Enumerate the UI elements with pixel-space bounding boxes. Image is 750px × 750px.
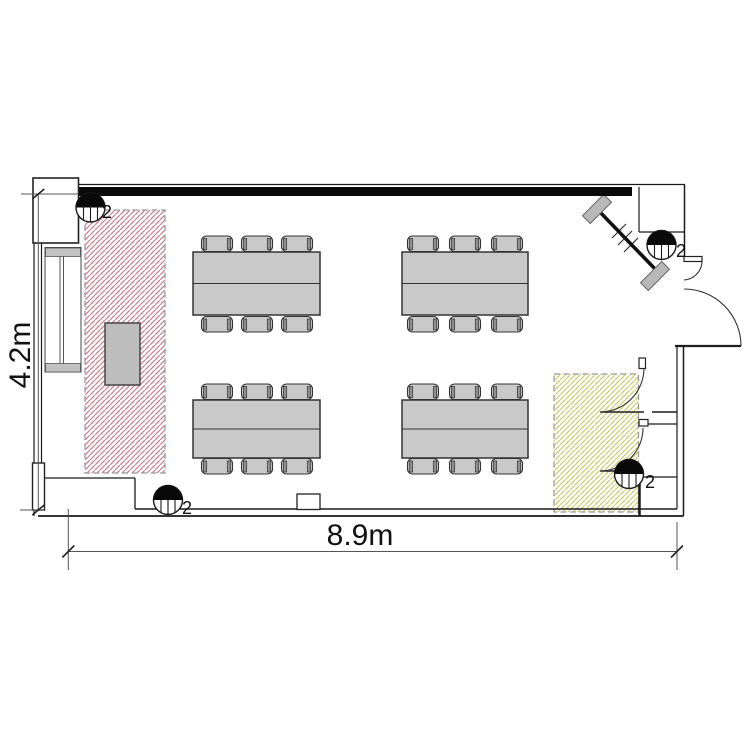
door-swing-arc	[684, 289, 741, 346]
chair	[202, 317, 233, 333]
ceiling-light-icon	[154, 486, 183, 515]
ceiling-light-icon	[76, 193, 105, 222]
top-wall-band	[79, 187, 632, 196]
chair	[492, 317, 523, 333]
door-leaf-small	[684, 257, 702, 262]
door-jamb	[639, 420, 648, 427]
door-swing-arc	[684, 262, 702, 281]
light-count-label: 2	[676, 241, 686, 261]
chair	[450, 236, 481, 252]
table-group	[402, 236, 528, 332]
chair	[242, 317, 273, 333]
chair	[202, 236, 233, 252]
chair	[282, 384, 313, 400]
chair	[202, 459, 233, 475]
chair	[408, 459, 439, 475]
chair	[242, 459, 273, 475]
chair	[492, 236, 523, 252]
chair	[242, 384, 273, 400]
pilaster	[297, 494, 320, 510]
chair	[408, 317, 439, 333]
chair	[492, 384, 523, 400]
light-count-label: 2	[645, 472, 655, 492]
table-group	[193, 236, 320, 332]
chair	[282, 317, 313, 333]
door-jamb	[639, 358, 646, 369]
ceiling-light-icon	[647, 231, 676, 260]
light-count-label: 2	[182, 498, 192, 518]
entrance-zone-hatch	[554, 374, 639, 512]
table-group	[193, 384, 320, 474]
column-top-left	[33, 178, 79, 243]
ceiling-light-icon	[615, 460, 644, 489]
table-group	[402, 384, 528, 474]
chair	[450, 459, 481, 475]
radiator	[45, 248, 81, 373]
chair	[492, 459, 523, 475]
width-dimension-label: 8.9m	[327, 519, 394, 552]
chair	[408, 236, 439, 252]
chair	[408, 384, 439, 400]
chair	[450, 384, 481, 400]
floor-plan-canvas: 2 2 2 2 4.2m 8.9m	[0, 0, 750, 750]
chair	[282, 236, 313, 252]
chair	[282, 459, 313, 475]
lectern	[105, 323, 140, 385]
chair	[202, 384, 233, 400]
entrance-door	[684, 257, 741, 347]
floor-plan-page: 2 2 2 2 4.2m 8.9m	[0, 0, 750, 750]
light-count-label: 2	[102, 202, 112, 222]
height-dimension-label: 4.2m	[4, 322, 37, 389]
chair	[242, 236, 273, 252]
chair	[450, 317, 481, 333]
